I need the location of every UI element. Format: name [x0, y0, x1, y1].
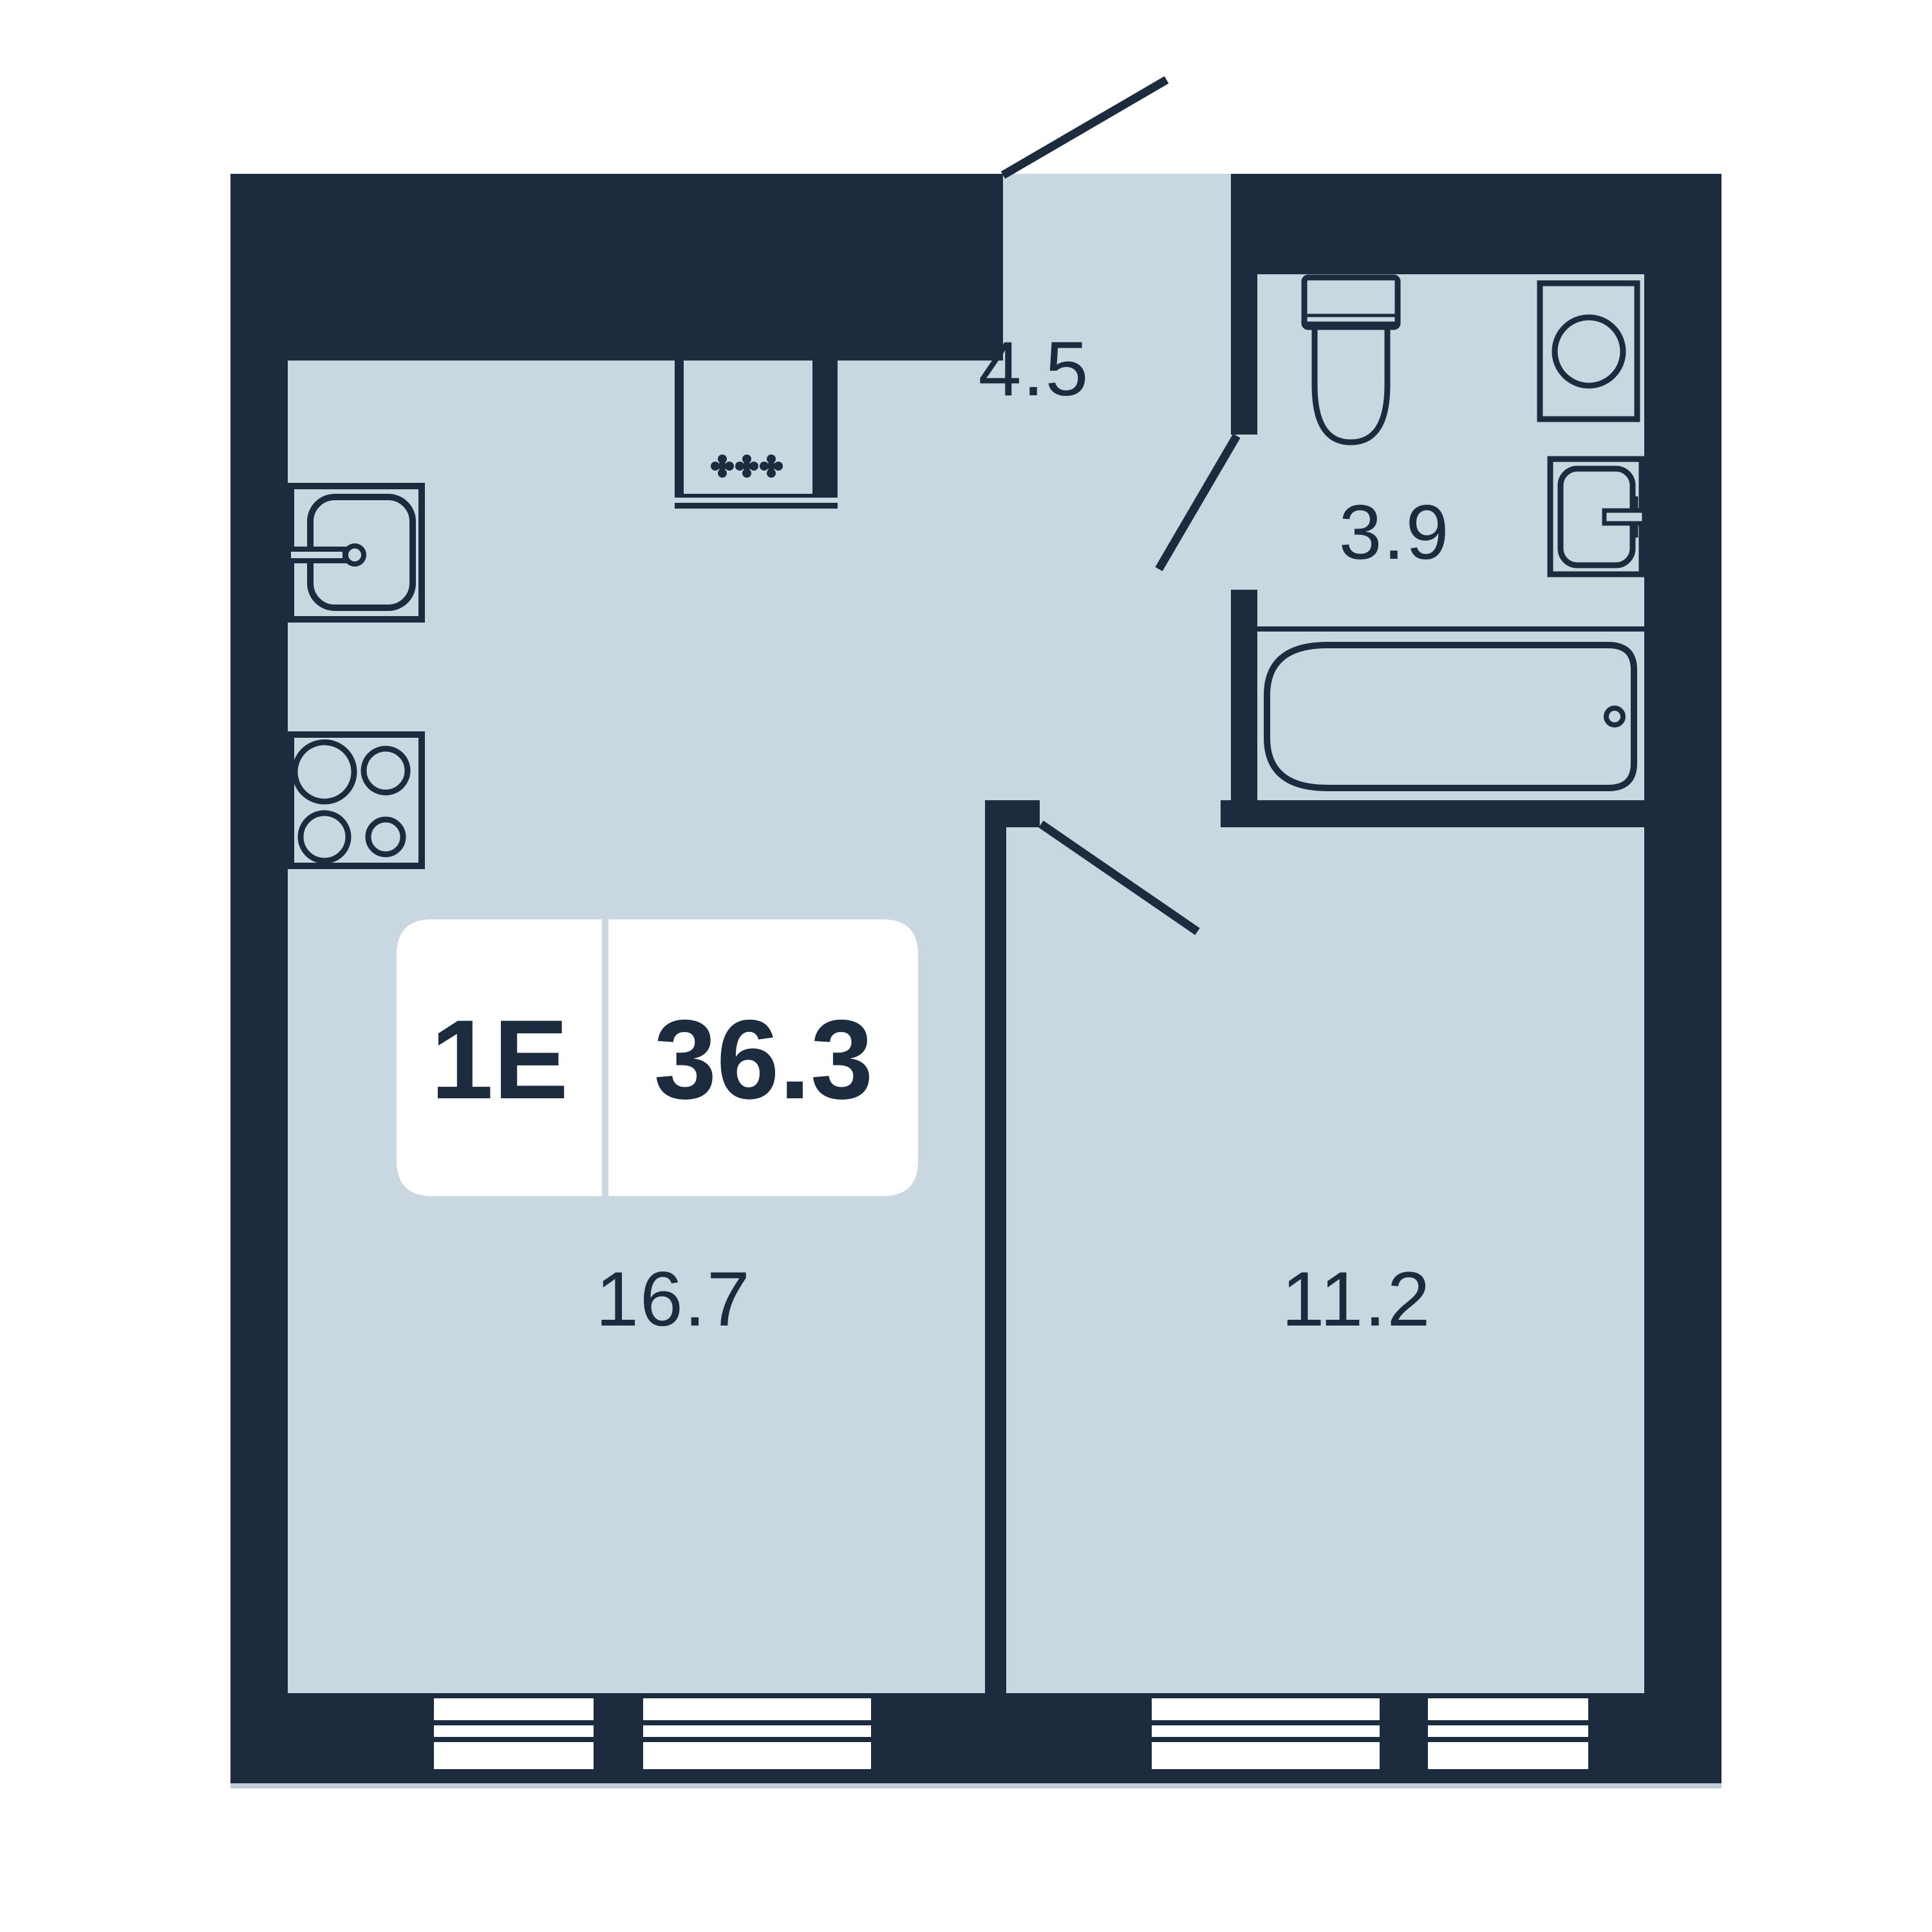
area-badge: 1E 36.3: [397, 919, 918, 1196]
room-label-bathroom: 3.9: [1339, 489, 1450, 576]
room-label-kitchen-living: 16.7: [596, 1256, 751, 1342]
window: [1428, 1698, 1588, 1769]
badge-type-label: 1E: [431, 997, 568, 1123]
bathroom-faucet-icon: [1604, 511, 1644, 523]
wardrobe-rod-line: [675, 498, 838, 503]
badge-area-label: 36.3: [654, 997, 874, 1123]
room-label-bedroom: 11.2: [1282, 1256, 1432, 1342]
room-label-hallway: 4.5: [979, 326, 1090, 412]
wall-shadow-line: [230, 1783, 1721, 1788]
kitchen-faucet-icon: [288, 549, 345, 561]
window: [1152, 1698, 1380, 1769]
window: [434, 1698, 594, 1769]
bathtub-partition-line: [1257, 626, 1644, 632]
window: [643, 1698, 871, 1769]
floor-plan: 4.5 3.9 16.7 11.2 1E 36.3: [0, 0, 1932, 1932]
